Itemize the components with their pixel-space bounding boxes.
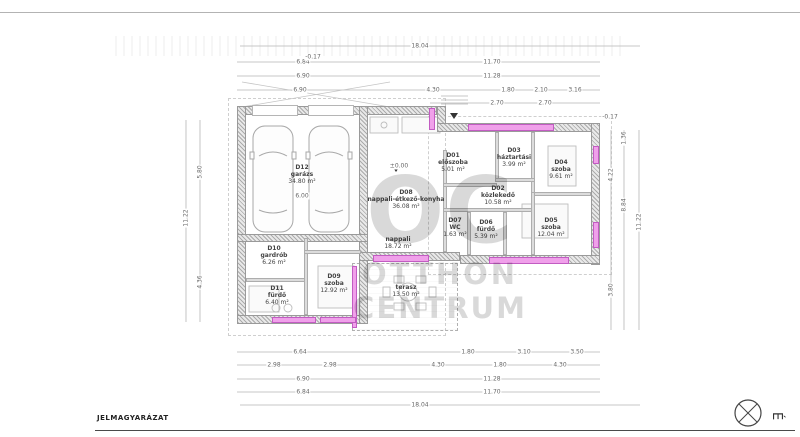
dim-label: 18.04 [410, 402, 429, 409]
room-area: 12.04 m² [537, 232, 564, 239]
room-name: D10 [261, 245, 288, 252]
dim-label: 4.30 [425, 87, 440, 94]
interior-wall [503, 212, 507, 255]
room-name: D03 [497, 147, 531, 154]
room-name: terasz [392, 284, 419, 291]
room-name: fürdő [265, 292, 289, 299]
window-marker [468, 124, 554, 131]
window-marker [373, 255, 429, 262]
floor-plan-page: D12garázs34.80 m²D01előszoba5.01 m²D02kö… [0, 0, 800, 437]
room-label-D04: D04szoba9.61 m² [549, 159, 573, 181]
dim-label: 18.04 [410, 43, 429, 50]
room-name: D12 [288, 164, 315, 171]
dim-label: 11.22 [183, 208, 190, 227]
room-label-D01: D01előszoba5.01 m² [438, 152, 468, 174]
dim-label: 11.70 [482, 59, 501, 66]
room-name: D07 [443, 217, 467, 224]
room-label-terasz: terasz13.50 m² [392, 284, 419, 298]
garage-door-opening [252, 105, 298, 116]
room-label-D03: D03háztartási3.99 m² [497, 147, 531, 169]
north-compass-icon: É [733, 394, 795, 434]
window-marker [320, 317, 356, 323]
window-marker [593, 222, 599, 248]
legend-divider-line [95, 430, 795, 431]
room-area: 3.99 m² [497, 162, 531, 169]
room-name: szoba [549, 166, 573, 173]
room-name: előszoba [438, 159, 468, 166]
dim-label: 6.90 [295, 73, 310, 80]
room-name: D11 [265, 285, 289, 292]
window-marker [272, 317, 316, 323]
dim-label: 2.70 [489, 100, 504, 107]
wall-segment [359, 106, 368, 324]
room-label-D06: D06fürdő5.39 m² [474, 219, 498, 241]
room-name: szoba [320, 280, 347, 287]
window-marker [489, 257, 569, 264]
room-area: 6.26 m² [261, 260, 288, 267]
room-name: nappali-étkező-konyha [368, 196, 445, 203]
dim-label: 2.98 [266, 362, 281, 369]
dim-label: 4.22 [608, 167, 615, 182]
dim-label: 6.90 [292, 87, 307, 94]
room-name: D04 [549, 159, 573, 166]
garage-door-opening [308, 105, 354, 116]
dim-label: 6.84 [295, 389, 310, 396]
dim-label: 8.84 [621, 197, 628, 212]
north-label: É [769, 412, 785, 420]
interior-wall [443, 208, 535, 212]
room-area: 36.08 m² [368, 204, 445, 211]
room-name: szoba [537, 224, 564, 231]
dim-label: 11.22 [636, 212, 643, 231]
room-area: 6.40 m² [265, 300, 289, 307]
room-label-D12: D12garázs34.80 m² [288, 164, 315, 186]
room-label-D05: D05szoba12.04 m² [537, 217, 564, 239]
dim-label: ±0.00 [389, 163, 409, 170]
interior-wall [304, 250, 361, 254]
room-area: 13.50 m² [392, 291, 419, 298]
room-name: D08 [368, 189, 445, 196]
interior-wall [531, 192, 591, 196]
dim-label: 3.80 [608, 282, 615, 297]
room-area: 18.72 m² [384, 243, 411, 250]
dim-label: 3.16 [567, 87, 582, 94]
dim-label: 1.80 [492, 362, 507, 369]
room-area: 10.58 m² [481, 200, 515, 207]
room-label-nappali: nappali18.72 m² [384, 236, 411, 250]
dim-label: 6.64 [292, 349, 307, 356]
dim-label: 1.80 [460, 349, 475, 356]
room-label-D10: D10gardrób6.26 m² [261, 245, 288, 267]
room-name: D01 [438, 152, 468, 159]
room-label-D08: D08nappali-étkező-konyha36.08 m² [368, 189, 445, 211]
room-name: D09 [320, 273, 347, 280]
dim-label: 6.00 [294, 193, 309, 200]
interior-wall [531, 192, 535, 255]
dim-label: 1.36 [621, 130, 628, 145]
room-name: közlekedő [481, 192, 515, 199]
dim-label: 11.28 [482, 376, 501, 383]
dim-label: 2.98 [322, 362, 337, 369]
plan-decorations [0, 0, 800, 437]
dim-label: 3.50 [569, 349, 584, 356]
dim-label: 11.70 [482, 389, 501, 396]
dim-label: -0.17 [601, 114, 619, 121]
room-name: garázs [288, 171, 315, 178]
window-marker [593, 146, 599, 164]
dim-label: 11.28 [482, 73, 501, 80]
dim-label: 2.70 [537, 100, 552, 107]
room-area: 12.92 m² [320, 288, 347, 295]
dim-label: 3.10 [516, 349, 531, 356]
room-label-D02: D02közlekedő10.58 m² [481, 185, 515, 207]
room-name: WC [443, 224, 467, 231]
room-label-D09: D09szoba12.92 m² [320, 273, 347, 295]
room-name: D05 [537, 217, 564, 224]
room-name: háztartási [497, 154, 531, 161]
dim-label: -0.17 [304, 54, 322, 61]
room-name: fürdő [474, 226, 498, 233]
room-area: 5.01 m² [438, 167, 468, 174]
dim-label: 4.30 [430, 362, 445, 369]
wall-segment [237, 106, 246, 324]
legend-title: JELMAGYARÁZAT [97, 414, 169, 422]
dim-label: 4.30 [552, 362, 567, 369]
room-name: D02 [481, 185, 515, 192]
interior-wall [246, 278, 308, 282]
room-name: D06 [474, 219, 498, 226]
room-area: 34.80 m² [288, 179, 315, 186]
room-area: 5.39 m² [474, 234, 498, 241]
room-area: 9.61 m² [549, 174, 573, 181]
room-name: nappali [384, 236, 411, 243]
room-label-D11: D11fürdő6.40 m² [265, 285, 289, 307]
dim-label: 4.36 [197, 274, 204, 289]
wall-segment [237, 234, 368, 242]
room-name: gardrób [261, 252, 288, 259]
dim-label: 1.80 [500, 87, 515, 94]
dim-label: 2.10 [533, 87, 548, 94]
dim-label: 6.90 [295, 376, 310, 383]
interior-wall [495, 178, 535, 182]
room-label-D07: D07WC1.63 m² [443, 217, 467, 239]
room-area: 1.63 m² [443, 232, 467, 239]
window-marker [429, 108, 435, 130]
interior-wall [531, 132, 535, 196]
driveway-lines [242, 82, 390, 107]
interior-wall [467, 212, 471, 255]
dim-label: 5.80 [197, 164, 204, 179]
